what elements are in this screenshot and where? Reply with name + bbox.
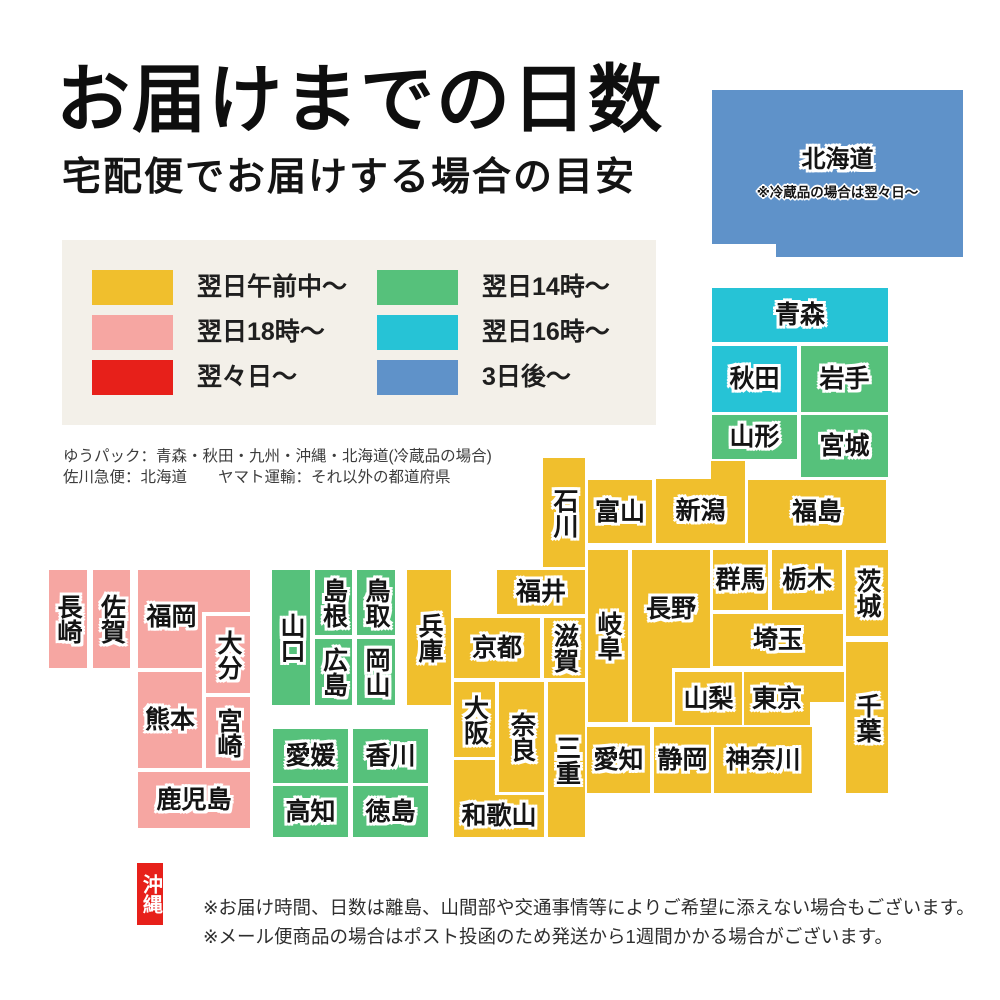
map-label-box-shiga: 滋賀 — [544, 618, 585, 678]
map-note-hokkaido: ※冷蔵品の場合は翌々日〜 — [757, 186, 919, 200]
footnote-line-2: ※メール便商品の場合はポスト投函のため発送から1週間かかる場合がございます。 — [203, 926, 893, 947]
map-block-ehime: 愛媛 — [273, 729, 348, 783]
map-label-box-chiba: 千葉 — [846, 642, 888, 793]
map-block-fukushima: 福島 — [748, 480, 886, 543]
map-block-shiga: 滋賀 — [544, 618, 585, 678]
map-label-box-nagano: 長野 — [632, 550, 710, 668]
map-block-niigata: 新潟 — [656, 461, 745, 543]
map-block-gunma: 群馬 — [713, 550, 768, 610]
map-label-box-wakayama: 和歌山 — [454, 795, 544, 837]
map-label-box-hyogo: 兵庫 — [407, 570, 451, 705]
map-label-box-kanagawa: 神奈川 — [714, 727, 812, 793]
map-label-box-ibaraki: 茨城 — [846, 550, 888, 636]
map-block-fukui: 福井 — [497, 570, 585, 614]
map-label-box-gunma: 群馬 — [713, 550, 768, 610]
map-label-box-yamagata: 山形 — [712, 415, 797, 459]
map-label-shizuoka: 静岡 — [657, 747, 707, 773]
map-block-kanagawa: 神奈川 — [714, 727, 812, 793]
map-block-nagasaki: 長崎 — [49, 570, 87, 668]
map-label-akita: 秋田 — [729, 366, 779, 392]
japan-delivery-map: 北海道※冷蔵品の場合は翌々日〜青森秋田岩手山形宮城福島新潟富山石川福井群馬栃木茨… — [0, 0, 1000, 1000]
map-label-kagoshima: 鹿児島 — [156, 787, 231, 813]
map-note-box-hokkaido: ※冷蔵品の場合は翌々日〜 — [712, 186, 963, 200]
map-label-kagawa: 香川 — [365, 743, 415, 769]
map-block-okinawa: 沖縄 — [137, 863, 163, 925]
map-block-miyagi: 宮城 — [801, 415, 888, 477]
map-block-ibaraki: 茨城 — [846, 550, 888, 636]
map-block-aichi: 愛知 — [587, 727, 650, 793]
map-label-box-iwate: 岩手 — [801, 346, 888, 412]
map-label-box-ehime: 愛媛 — [273, 729, 348, 783]
map-block-tokyo: 東京 — [744, 672, 844, 725]
map-block-miyazaki: 宮崎 — [206, 697, 250, 768]
map-label-tottori: 鳥取 — [363, 578, 389, 628]
map-label-box-kagawa: 香川 — [353, 729, 428, 783]
map-label-wakayama: 和歌山 — [461, 803, 536, 829]
map-label-mie: 三重 — [554, 735, 580, 785]
map-block-tochigi: 栃木 — [772, 550, 842, 610]
map-label-box-gifu: 岐阜 — [588, 550, 628, 722]
map-label-fukushima: 福島 — [792, 499, 842, 525]
map-block-ishikawa: 石川 — [543, 458, 585, 567]
map-label-box-yamaguchi: 山口 — [272, 570, 310, 705]
map-label-box-nagasaki: 長崎 — [49, 570, 87, 668]
map-label-box-toyama: 富山 — [588, 480, 652, 543]
map-label-hiroshima: 広島 — [321, 647, 347, 697]
map-block-chiba: 千葉 — [846, 642, 888, 793]
map-label-ehime: 愛媛 — [285, 743, 335, 769]
map-label-okinawa: 沖縄 — [140, 874, 161, 914]
map-label-nagasaki: 長崎 — [55, 594, 81, 644]
map-block-iwate: 岩手 — [801, 346, 888, 412]
map-label-nara: 奈良 — [509, 712, 535, 762]
map-label-box-fukui: 福井 — [497, 570, 585, 614]
map-block-tokushima: 徳島 — [353, 786, 428, 837]
map-label-aomori: 青森 — [775, 302, 825, 328]
map-block-osaka: 大阪 — [454, 682, 495, 757]
map-label-oita: 大分 — [215, 630, 241, 680]
map-label-box-mie: 三重 — [548, 682, 585, 837]
map-label-kanagawa: 神奈川 — [725, 747, 800, 773]
map-label-box-niigata: 新潟 — [656, 479, 745, 543]
map-label-hyogo: 兵庫 — [416, 613, 442, 663]
map-block-hiroshima: 広島 — [315, 639, 352, 705]
map-label-box-aichi: 愛知 — [587, 727, 650, 793]
map-block-yamaguchi: 山口 — [272, 570, 310, 705]
map-label-box-saga: 佐賀 — [93, 570, 130, 668]
map-label-hokkaido: 北海道 — [802, 148, 874, 173]
map-label-saga: 佐賀 — [99, 594, 125, 644]
map-label-gifu: 岐阜 — [595, 611, 621, 661]
map-label-saitama: 埼玉 — [753, 627, 803, 653]
map-label-ibaraki: 茨城 — [854, 568, 880, 618]
map-label-box-miyagi: 宮城 — [801, 415, 888, 477]
map-label-ishikawa: 石川 — [551, 488, 577, 538]
map-block-toyama: 富山 — [588, 480, 652, 543]
map-label-yamanashi: 山梨 — [683, 686, 733, 712]
map-label-box-shizuoka: 静岡 — [654, 727, 711, 793]
map-label-fukui: 福井 — [516, 579, 566, 605]
map-block-kagoshima: 鹿児島 — [138, 772, 250, 828]
map-label-gunma: 群馬 — [715, 567, 765, 593]
map-label-box-oita: 大分 — [206, 616, 250, 693]
map-label-box-yamanashi: 山梨 — [675, 672, 742, 725]
map-label-niigata: 新潟 — [675, 498, 725, 524]
map-label-box-aomori: 青森 — [712, 288, 888, 342]
map-label-kyoto: 京都 — [472, 635, 522, 661]
map-block-kyoto: 京都 — [454, 618, 540, 678]
map-label-box-fukushima: 福島 — [748, 480, 886, 543]
map-block-shizuoka: 静岡 — [654, 727, 711, 793]
map-label-nagano: 長野 — [646, 596, 696, 622]
map-block-kumamoto: 熊本 — [138, 672, 202, 768]
map-block-yamagata: 山形 — [712, 415, 797, 459]
map-label-box-nara: 奈良 — [499, 682, 544, 792]
map-label-box-osaka: 大阪 — [454, 682, 495, 757]
map-label-yamaguchi: 山口 — [278, 613, 304, 663]
map-label-yamagata: 山形 — [729, 424, 779, 450]
map-label-box-kyoto: 京都 — [454, 618, 540, 678]
map-label-box-hokkaido: 北海道 — [712, 132, 963, 188]
map-label-box-okinawa: 沖縄 — [137, 863, 163, 925]
map-label-tochigi: 栃木 — [782, 567, 832, 593]
map-block-yamanashi: 山梨 — [675, 672, 742, 725]
footnotes: ※お届け時間、日数は離島、山間部や交通事情等によりご希望に添えない場合もございま… — [203, 893, 975, 951]
map-label-box-tokushima: 徳島 — [353, 786, 428, 837]
map-block-aomori: 青森 — [712, 288, 888, 342]
map-block-hyogo: 兵庫 — [407, 570, 451, 705]
map-label-shimane: 島根 — [321, 578, 347, 628]
map-label-fukuoka: 福岡 — [146, 604, 196, 630]
map-label-box-ishikawa: 石川 — [543, 458, 585, 567]
map-block-akita: 秋田 — [712, 346, 797, 412]
map-block-tottori: 鳥取 — [357, 570, 395, 635]
map-block-saitama: 埼玉 — [713, 614, 843, 666]
map-block-oita: 大分 — [206, 616, 250, 693]
map-label-tokyo: 東京 — [752, 686, 802, 712]
map-label-box-saitama: 埼玉 — [713, 614, 843, 666]
map-label-box-miyazaki: 宮崎 — [206, 697, 250, 768]
map-label-box-akita: 秋田 — [712, 346, 797, 412]
map-block-mie: 三重 — [548, 682, 585, 837]
map-label-kumamoto: 熊本 — [145, 707, 195, 733]
map-label-osaka: 大阪 — [462, 695, 488, 745]
map-label-box-hiroshima: 広島 — [315, 639, 352, 705]
map-label-okayama: 岡山 — [363, 647, 389, 697]
map-block-okayama: 岡山 — [357, 639, 395, 705]
map-label-chiba: 千葉 — [854, 693, 880, 743]
map-label-miyazaki: 宮崎 — [215, 708, 241, 758]
map-label-toyama: 富山 — [595, 499, 645, 525]
map-label-box-kochi: 高知 — [273, 786, 348, 837]
map-block-gifu: 岐阜 — [588, 550, 628, 722]
map-label-box-tottori: 鳥取 — [357, 570, 395, 635]
map-block-kagawa: 香川 — [353, 729, 428, 783]
map-label-shiga: 滋賀 — [552, 623, 578, 673]
map-block-saga: 佐賀 — [93, 570, 130, 668]
map-block-kochi: 高知 — [273, 786, 348, 837]
map-label-box-shimane: 島根 — [315, 570, 352, 635]
map-block-nara: 奈良 — [499, 682, 544, 792]
map-block-hokkaido: 北海道※冷蔵品の場合は翌々日〜 — [712, 90, 963, 257]
map-label-box-fukuoka: 福岡 — [138, 588, 205, 646]
map-label-box-tochigi: 栃木 — [772, 550, 842, 610]
footnote-line-1: ※お届け時間、日数は離島、山間部や交通事情等によりご希望に添えない場合もございま… — [203, 897, 975, 918]
map-label-box-kagoshima: 鹿児島 — [138, 772, 250, 828]
map-label-aichi: 愛知 — [593, 747, 643, 773]
map-label-tokushima: 徳島 — [365, 799, 415, 825]
map-block-shimane: 島根 — [315, 570, 352, 635]
map-label-box-okayama: 岡山 — [357, 639, 395, 705]
map-label-iwate: 岩手 — [819, 366, 869, 392]
map-label-kochi: 高知 — [285, 799, 335, 825]
map-label-box-tokyo: 東京 — [744, 672, 810, 725]
map-label-miyagi: 宮城 — [819, 433, 869, 459]
map-label-box-kumamoto: 熊本 — [138, 672, 202, 768]
